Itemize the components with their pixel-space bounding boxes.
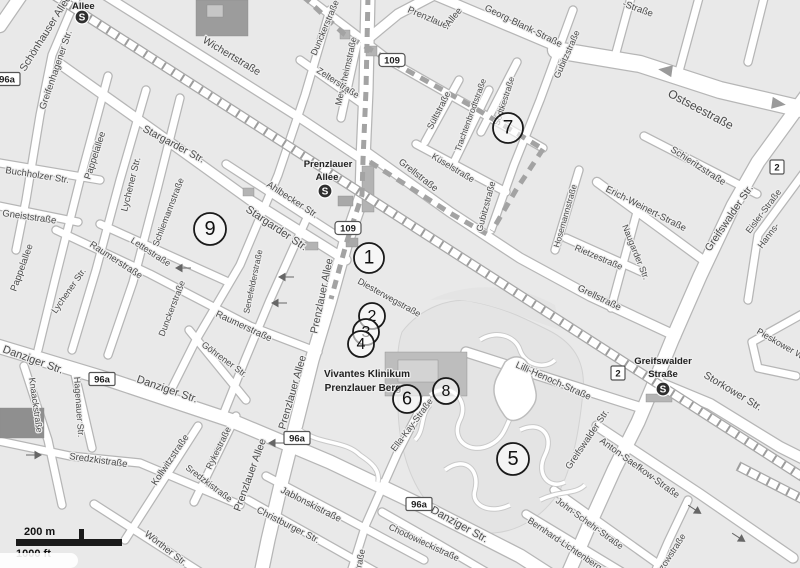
route-badge: 109 (335, 222, 361, 235)
sbahn-station-icon[interactable]: S (75, 10, 89, 24)
street-label: Sredzkistraße (69, 451, 129, 470)
map-canvas[interactable]: Schönhauser AlleeAlleeGreifenhagener Str… (0, 0, 800, 568)
street-label: Erich-Weinert-Straße (604, 184, 688, 234)
route-badge-label: 96a (0, 75, 16, 86)
numbered-marker-1[interactable]: 1 (354, 243, 384, 273)
sbahn-icon-letter: S (660, 385, 667, 396)
map-image: Schönhauser AlleeAlleeGreifenhagener Str… (0, 0, 800, 568)
marker-number: 1 (364, 248, 375, 269)
route-badge: 96a (0, 73, 20, 86)
sbahn-icon-letter: S (79, 13, 86, 24)
numbered-marker-8[interactable]: 8 (433, 378, 459, 404)
street-label: Gneiststraße (2, 208, 57, 226)
route-badge-label: 2 (774, 163, 779, 174)
scale-metric-label: 200 m (24, 526, 122, 538)
marker-number: 9 (204, 218, 215, 240)
route-badge-label: 109 (384, 56, 400, 67)
street-label: Rykestraße (204, 425, 233, 471)
scale-bar-tick (79, 529, 84, 539)
route-badge: 109 (379, 54, 405, 67)
station-label: Greifswalder (634, 356, 692, 367)
street-label: Hagenauer Str. (72, 376, 86, 437)
route-badge-label: 109 (340, 224, 356, 235)
street-label: Greifswalder Str. (703, 183, 756, 254)
station-label: Straße (648, 369, 678, 380)
route-badge-label: 96a (289, 434, 306, 445)
marker-number: 4 (357, 336, 366, 353)
route-badge-label: 2 (615, 369, 620, 380)
route-badge: 96a (284, 432, 310, 445)
sbahn-station-icon[interactable]: S (656, 382, 670, 396)
roads-layer (0, 0, 800, 568)
attribution-stub (0, 553, 78, 568)
sbahn-icon-letter: S (322, 187, 329, 198)
route-badge-label: 96a (411, 500, 428, 511)
route-badge: 2 (770, 160, 784, 174)
poi-label: Vivantes Klinikum (324, 369, 410, 380)
route-badge: 96a (89, 373, 115, 386)
numbered-marker-6[interactable]: 6 (393, 385, 421, 413)
route-badge-label: 96a (94, 375, 111, 386)
marker-number: 6 (402, 388, 412, 408)
route-badge: 96a (406, 498, 432, 511)
numbered-marker-9[interactable]: 9 (194, 213, 226, 245)
scale-bar-rule (16, 539, 122, 546)
numbered-marker-4[interactable]: 4 (348, 331, 374, 357)
marker-number: 5 (507, 448, 518, 470)
numbered-marker-5[interactable]: 5 (497, 443, 529, 475)
marker-number: 8 (442, 383, 451, 400)
station-label: Allee (316, 172, 339, 183)
street-label: Schieritzstraße (668, 144, 727, 188)
station-label: Prenzlauer (304, 159, 353, 170)
route-badge: 2 (611, 366, 625, 380)
numbered-marker-7[interactable]: 7 (493, 113, 523, 143)
sbahn-station-icon[interactable]: S (318, 184, 332, 198)
marker-number: 7 (503, 118, 514, 139)
street-label: Wörther Str. (142, 529, 189, 568)
poi-label: Prenzlauer Berg (325, 383, 402, 394)
